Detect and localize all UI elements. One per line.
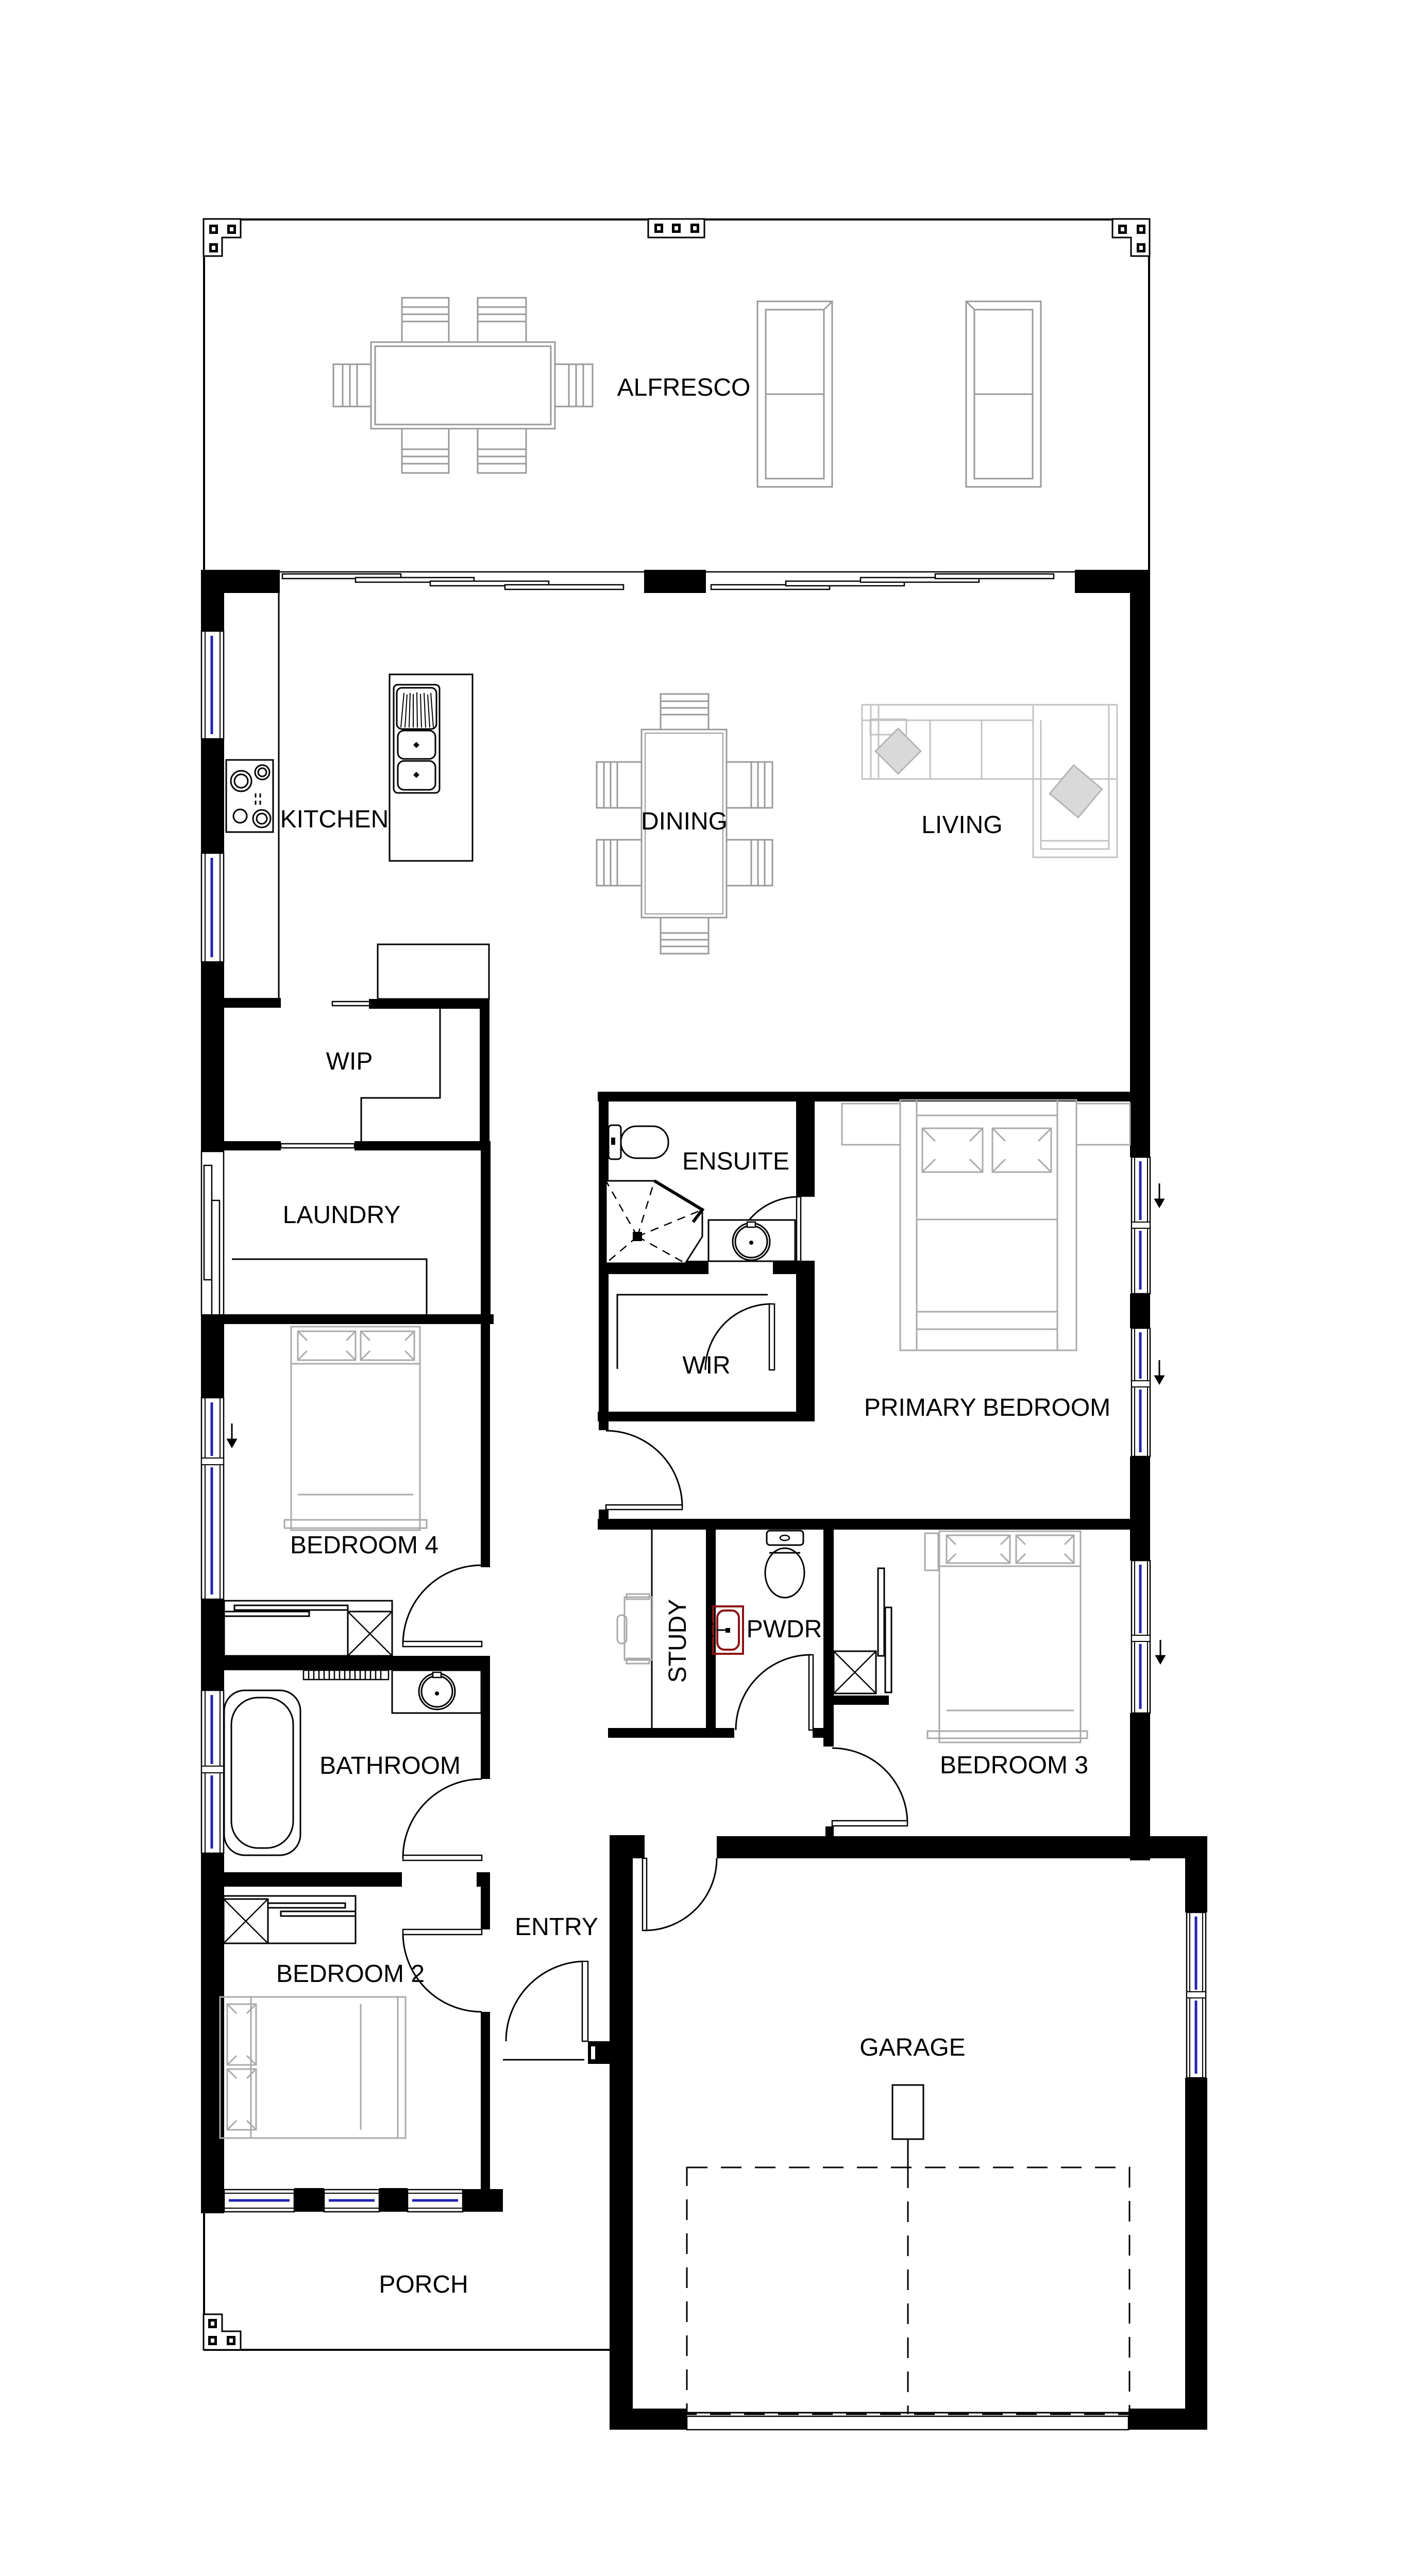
svg-text:PWDR: PWDR	[747, 1616, 822, 1643]
svg-text:STUDY: STUDY	[664, 1599, 691, 1683]
svg-text:PRIMARY BEDROOM: PRIMARY BEDROOM	[864, 1394, 1110, 1421]
svg-text:BATHROOM: BATHROOM	[319, 1752, 461, 1780]
svg-text:LIVING: LIVING	[921, 811, 1002, 839]
svg-text:GARAGE: GARAGE	[859, 2034, 965, 2061]
svg-text:KITCHEN: KITCHEN	[280, 806, 389, 833]
svg-text:PORCH: PORCH	[379, 2271, 468, 2298]
svg-text:LAUNDRY: LAUNDRY	[283, 1201, 401, 1229]
svg-text:DINING: DINING	[641, 808, 728, 835]
svg-text:BEDROOM 2: BEDROOM 2	[276, 1960, 425, 1988]
svg-text:BEDROOM 4: BEDROOM 4	[290, 1532, 438, 1559]
svg-text:ENSUITE: ENSUITE	[682, 1148, 789, 1175]
svg-text:BEDROOM 3: BEDROOM 3	[940, 1752, 1088, 1779]
svg-text:WIR: WIR	[682, 1352, 730, 1379]
svg-text:ALFRESCO: ALFRESCO	[617, 374, 751, 401]
svg-text:WIP: WIP	[326, 1048, 373, 1075]
svg-text:ENTRY: ENTRY	[515, 1913, 598, 1941]
